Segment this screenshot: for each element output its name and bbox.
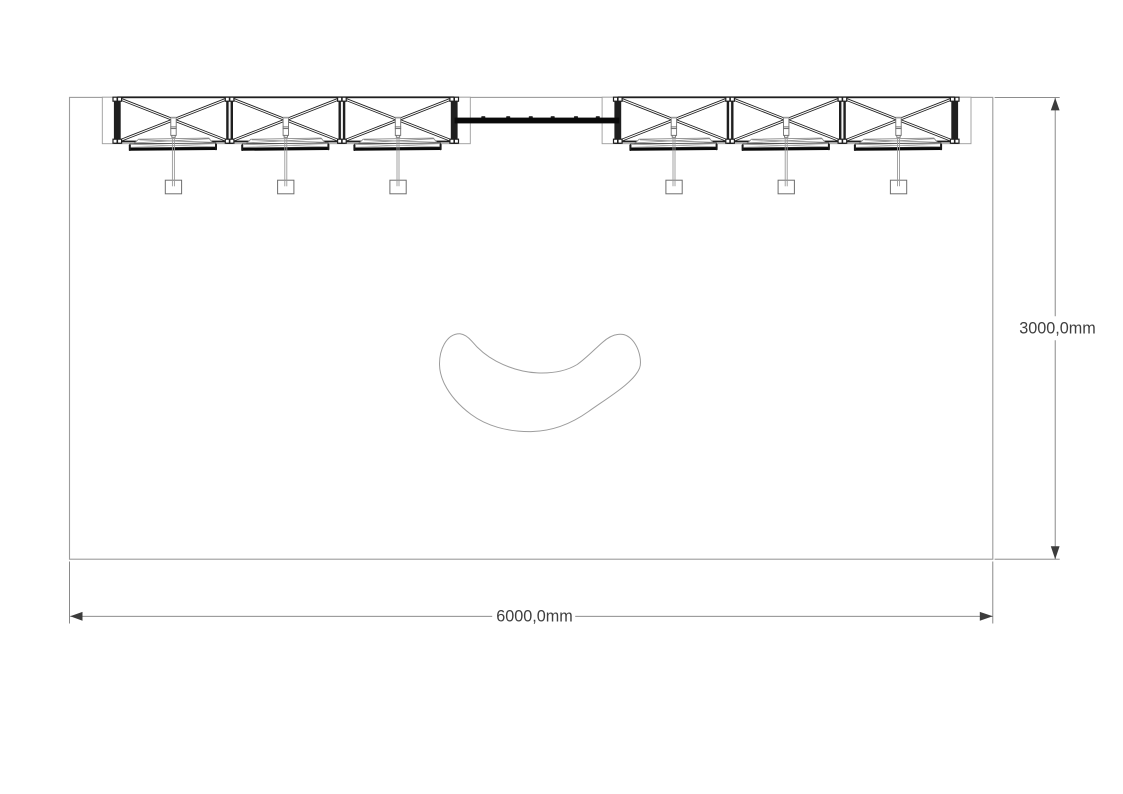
svg-text:3000,0mm: 3000,0mm — [1019, 319, 1095, 337]
svg-text:6000,0mm: 6000,0mm — [496, 607, 572, 625]
